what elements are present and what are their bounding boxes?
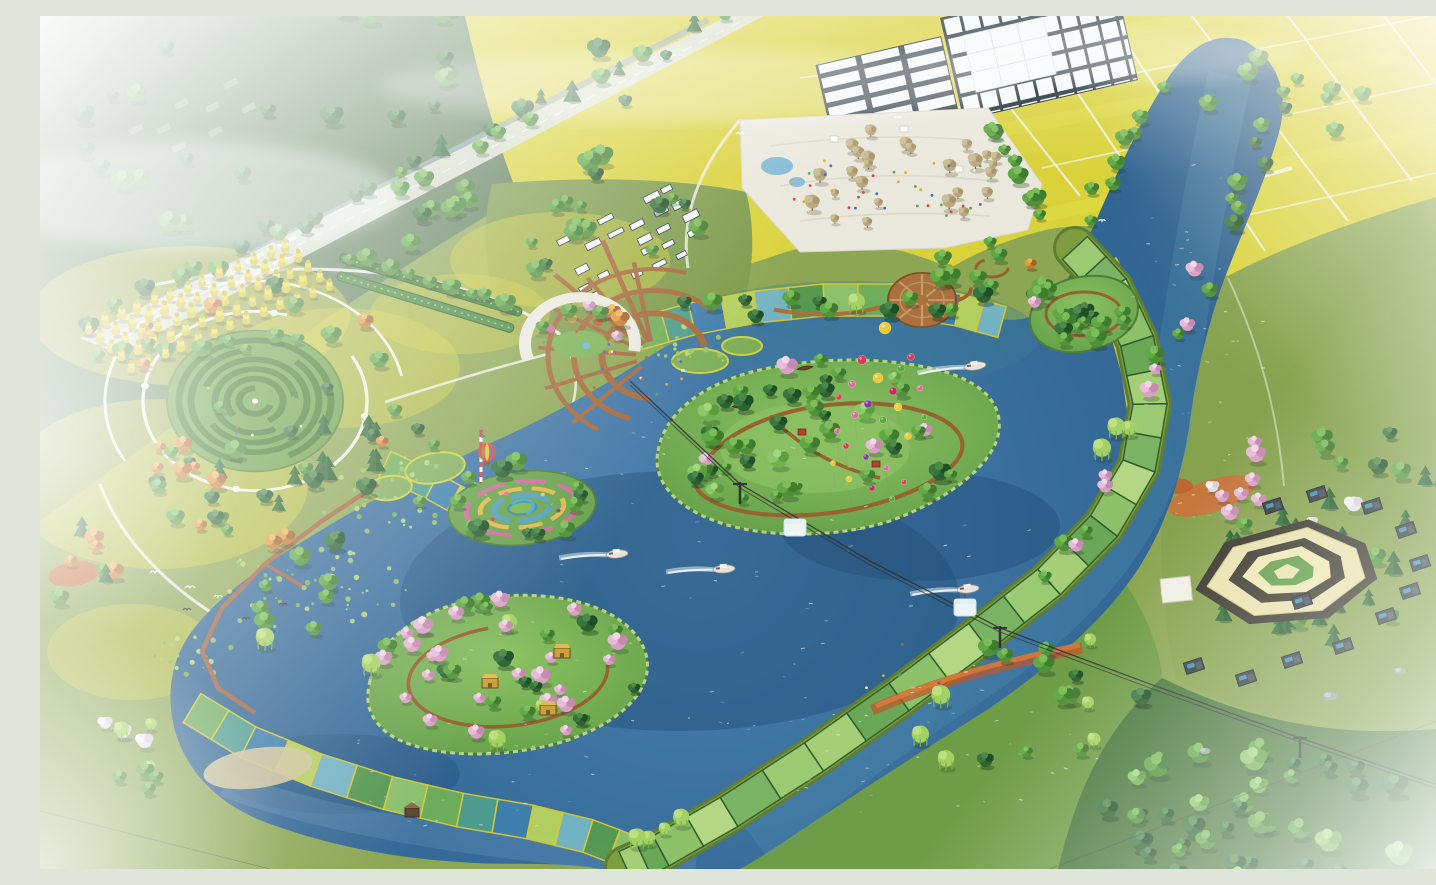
cloud-streak (900, 30, 1300, 82)
aerial-rendering-frame (40, 16, 1436, 869)
mist-overlays (40, 16, 1436, 869)
wetland-park-aerial-rendering (40, 16, 1436, 869)
